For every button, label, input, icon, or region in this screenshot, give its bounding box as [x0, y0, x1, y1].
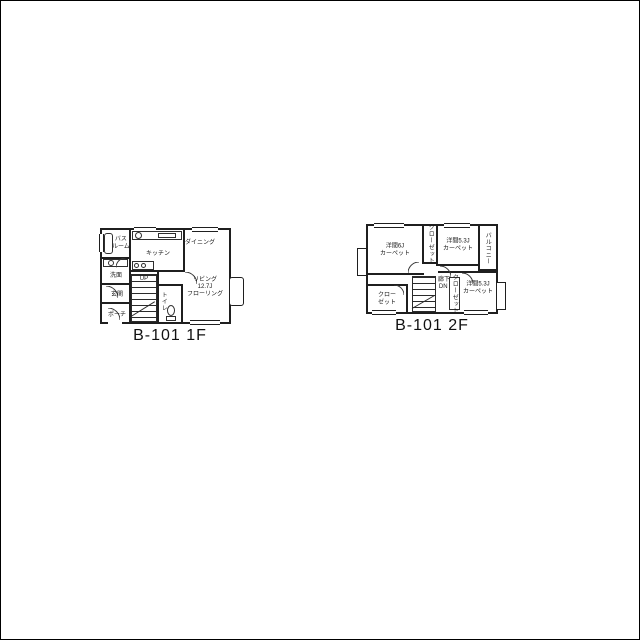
porch-opening [108, 321, 122, 325]
stairs-up-label: UP [134, 274, 154, 283]
window [190, 320, 220, 325]
floorplan-scan: UP バスルーム 洗面 キッチン ダイニング リビング12.7Jフローリング 玄… [0, 0, 640, 640]
door-arc [408, 262, 419, 273]
closet-sw-label: クローゼット [370, 290, 404, 308]
wall [406, 284, 408, 312]
wall [102, 302, 131, 304]
wall [102, 283, 131, 285]
living-label: リビング12.7Jフローリング [182, 273, 228, 300]
wall [159, 284, 183, 286]
balcony-label: バルコニー [481, 228, 493, 268]
floor2-caption: B-101 2F [366, 317, 498, 335]
toilet-label: トイレ [159, 288, 167, 314]
bath-label: バスルーム [112, 233, 130, 253]
room-nw-label: 洋間6Jカーペット [372, 240, 418, 260]
stove-burner-icon [141, 263, 146, 268]
floor1-right-bay-window [229, 277, 244, 306]
porch-label: ポーチ [104, 308, 129, 318]
floor2-left-bay-window [357, 248, 367, 276]
kitchen-sink-icon [135, 232, 142, 239]
wall [478, 226, 480, 271]
window [374, 223, 404, 228]
toilet-bowl-icon [167, 305, 175, 316]
entrance-label: 玄関 [104, 288, 129, 298]
door-arc [116, 258, 126, 268]
washroom-label: 洗面 [103, 269, 129, 279]
room-se-label: 洋間5.3Jカーペット [459, 278, 496, 298]
dining-label: ダイニング [180, 237, 220, 246]
kitchen-label: キッチン [136, 248, 180, 257]
stairs-down-label: DN [436, 282, 450, 290]
window [464, 310, 488, 315]
closet-top-label: クローゼット [424, 228, 436, 260]
wall [368, 273, 424, 275]
floor2-right-bay-window [496, 282, 506, 310]
window [444, 223, 470, 228]
room-ne-label: 洋間5.3Jカーペット [438, 235, 478, 255]
washbasin-bowl-icon [108, 260, 114, 266]
toilet-tank-icon [166, 316, 176, 321]
kitchen-worktop-icon [158, 233, 176, 238]
stove-burner-icon [134, 263, 139, 268]
window [372, 310, 396, 315]
floor1-caption: B-101 1F [100, 327, 240, 345]
window [192, 227, 218, 232]
